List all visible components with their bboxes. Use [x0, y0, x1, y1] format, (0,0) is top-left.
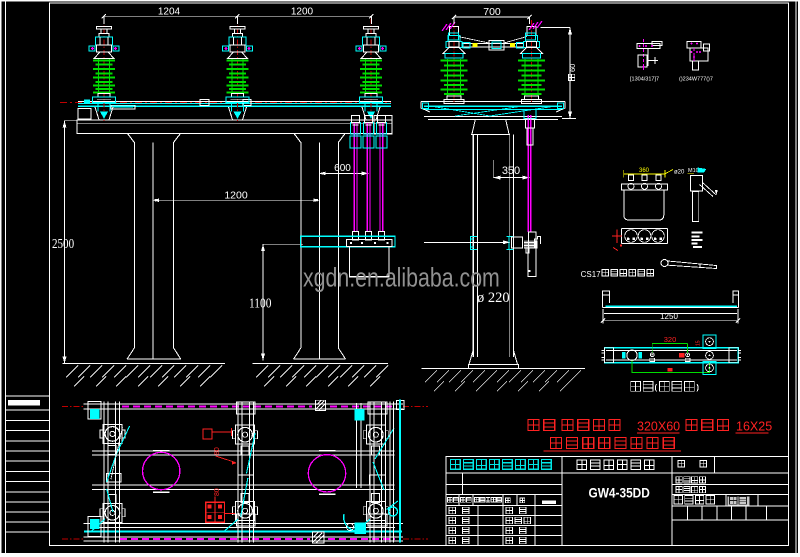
svg-text:GW4-35DD: GW4-35DD — [589, 485, 650, 501]
svg-text:ø20: ø20 — [674, 170, 685, 176]
svg-text:1200: 1200 — [291, 7, 314, 18]
svg-text:M10: M10 — [688, 168, 699, 174]
svg-text:80: 80 — [214, 488, 221, 496]
svg-text:1200: 1200 — [224, 190, 248, 202]
svg-text:1204: 1204 — [158, 7, 181, 18]
svg-text:700: 700 — [483, 6, 501, 18]
svg-text:320: 320 — [664, 335, 677, 344]
svg-text:CS17: CS17 — [581, 270, 602, 279]
svg-text:15: 15 — [696, 340, 702, 346]
svg-text:60: 60 — [568, 64, 577, 72]
svg-text:2500: 2500 — [52, 236, 74, 251]
svg-text:[1304/317]7: [1304/317]7 — [630, 77, 659, 83]
svg-text:1100: 1100 — [249, 296, 272, 311]
svg-text:16X25: 16X25 — [736, 420, 772, 434]
svg-text:80: 80 — [214, 447, 221, 455]
svg-text:()234W777()7: ()234W777()7 — [679, 77, 713, 83]
svg-text:xgdn.en.alibaba.com: xgdn.en.alibaba.com — [303, 263, 500, 293]
svg-text:1250: 1250 — [660, 312, 678, 321]
svg-text:350: 350 — [502, 165, 520, 177]
svg-text:320X60: 320X60 — [637, 420, 680, 434]
svg-text:360: 360 — [639, 168, 650, 174]
svg-text:600: 600 — [334, 163, 351, 174]
